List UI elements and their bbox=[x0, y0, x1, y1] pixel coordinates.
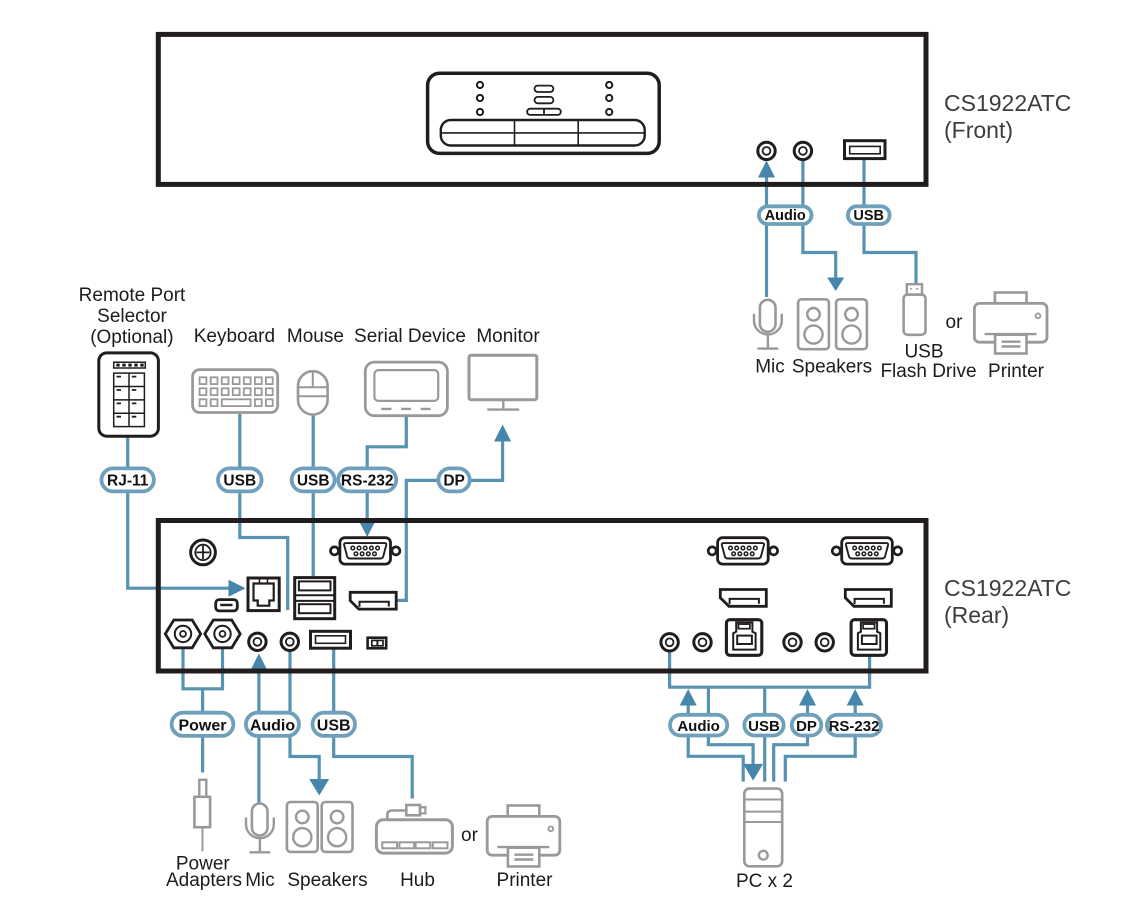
svg-text:Speakers: Speakers bbox=[287, 870, 367, 891]
svg-text:(Rear): (Rear) bbox=[944, 602, 1009, 628]
svg-text:USB: USB bbox=[223, 473, 256, 490]
svg-text:USB: USB bbox=[297, 473, 330, 490]
svg-text:Audio: Audio bbox=[765, 208, 806, 224]
svg-text:Printer: Printer bbox=[988, 361, 1045, 382]
svg-text:(Optional): (Optional) bbox=[90, 327, 173, 348]
svg-text:USB: USB bbox=[317, 717, 351, 734]
svg-text:Remote Port: Remote Port bbox=[79, 285, 186, 306]
svg-text:Flash Drive: Flash Drive bbox=[880, 361, 976, 382]
svg-text:RJ-11: RJ-11 bbox=[107, 473, 149, 490]
svg-text:or: or bbox=[461, 825, 479, 846]
svg-text:DP: DP bbox=[443, 473, 465, 490]
svg-text:USB: USB bbox=[748, 718, 780, 735]
svg-text:Audio: Audio bbox=[250, 717, 296, 734]
svg-text:or: or bbox=[946, 312, 964, 333]
svg-text:USB: USB bbox=[904, 342, 943, 363]
svg-text:RS-232: RS-232 bbox=[829, 718, 880, 735]
svg-text:Adapters: Adapters bbox=[166, 870, 242, 891]
svg-text:Power: Power bbox=[178, 717, 226, 734]
svg-text:Printer: Printer bbox=[497, 870, 554, 891]
svg-text:Selector: Selector bbox=[97, 306, 167, 327]
svg-text:Speakers: Speakers bbox=[792, 357, 872, 378]
svg-text:Mouse: Mouse bbox=[287, 326, 344, 347]
svg-text:(Front): (Front) bbox=[944, 117, 1013, 143]
svg-text:DP: DP bbox=[796, 718, 817, 735]
svg-text:Mic: Mic bbox=[755, 357, 785, 378]
svg-text:CS1922ATC: CS1922ATC bbox=[944, 90, 1071, 116]
svg-text:Monitor: Monitor bbox=[476, 326, 540, 347]
svg-text:RS-232: RS-232 bbox=[341, 473, 394, 490]
svg-text:Mic: Mic bbox=[245, 870, 275, 891]
svg-text:PC x 2: PC x 2 bbox=[736, 871, 793, 892]
svg-text:Serial Device: Serial Device bbox=[354, 326, 466, 347]
svg-text:Audio: Audio bbox=[677, 718, 720, 735]
svg-text:Hub: Hub bbox=[400, 870, 435, 891]
svg-text:USB: USB bbox=[853, 208, 884, 224]
svg-text:Keyboard: Keyboard bbox=[194, 326, 275, 347]
svg-text:CS1922ATC: CS1922ATC bbox=[944, 575, 1071, 601]
